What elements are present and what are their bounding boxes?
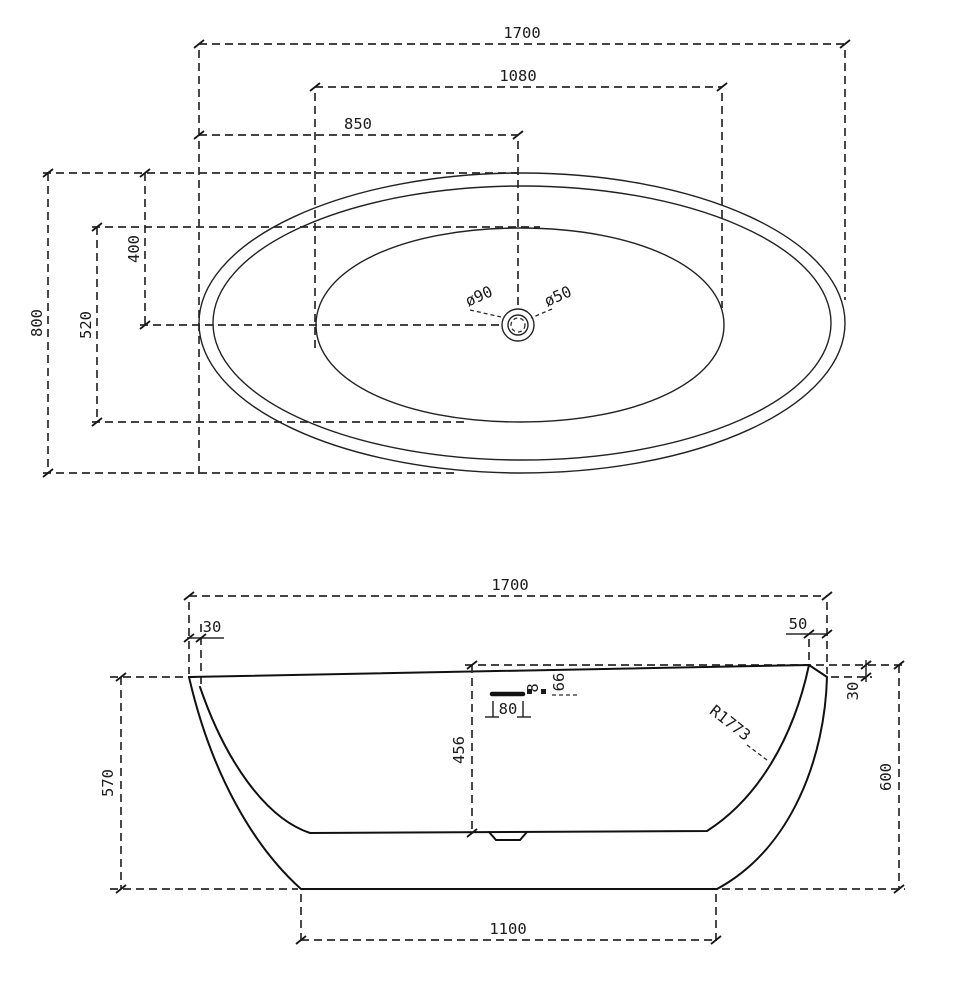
tub-outer-rim [199, 173, 845, 473]
dim-label-height-overall: 600 [877, 763, 895, 791]
tub-profile-inner [200, 665, 809, 833]
dim-label-basin-width: 520 [77, 311, 95, 339]
side-view: 1700 30 50 30 600 570 456 80 8 66 R1773 … [99, 576, 905, 946]
dim-label-base-length: 1100 [489, 920, 526, 938]
side-view-dimension-lines [116, 592, 904, 944]
dim-label-overflow-offset: 66 [550, 673, 568, 692]
side-view-extension-lines [110, 602, 905, 946]
dim-label-half-width: 400 [125, 235, 143, 263]
dim-label-drain-waste: ø50 [542, 283, 575, 311]
dim-label-drain-outer: ø90 [463, 283, 496, 311]
top-view: 1700 1080 850 800 520 400 ø90 ø50 [28, 24, 850, 477]
dim-label-overflow-width: 80 [499, 700, 518, 718]
dim-label-basin-length: 1080 [499, 67, 536, 85]
dim-label-side-overall-length: 1700 [491, 576, 528, 594]
dim-label-overall-width: 800 [28, 309, 46, 337]
drain-outer-circle [502, 309, 534, 341]
dim-label-inner-depth: 456 [450, 736, 468, 764]
dim-label-overall-length: 1700 [503, 24, 540, 42]
dim-label-rim-drop-right: 30 [844, 682, 862, 701]
top-view-dimension-lines [43, 40, 850, 477]
dim-label-side-radius: R1773 [706, 702, 754, 745]
bathtub-technical-drawing: 1700 1080 850 800 520 400 ø90 ø50 [0, 0, 978, 1000]
bottom-drain-recess [489, 832, 527, 840]
dim-label-half-length: 850 [344, 115, 372, 133]
dim-label-overflow-slot-height: 8 [524, 683, 542, 692]
top-view-dimension-labels: 1700 1080 850 800 520 400 ø90 ø50 [28, 24, 574, 339]
top-view-extension-lines [43, 50, 845, 477]
side-view-outline [189, 665, 827, 889]
dim-label-rim-inset-left: 30 [203, 618, 222, 636]
drain-hidden-circle [511, 318, 525, 332]
top-view-outline [199, 173, 845, 473]
dim-label-height-left: 570 [99, 769, 117, 797]
drawing-canvas: 1700 1080 850 800 520 400 ø90 ø50 [0, 0, 978, 1000]
tub-profile-outer [189, 665, 827, 889]
dim-label-rim-inset-right: 50 [789, 615, 808, 633]
